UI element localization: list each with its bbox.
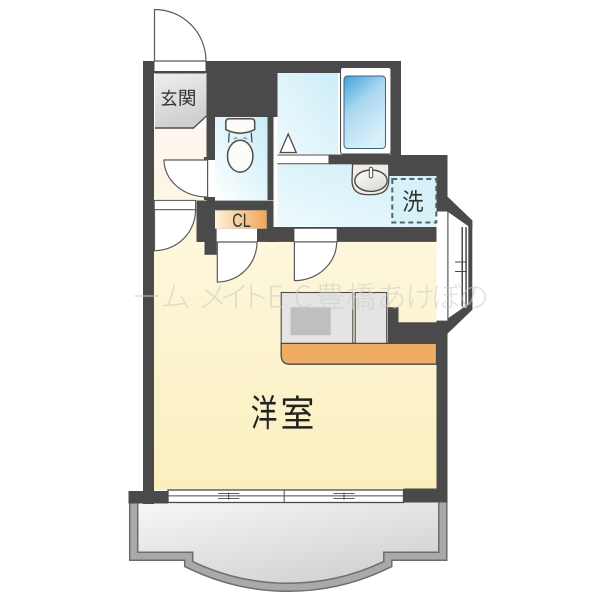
svg-text:CL: CL — [232, 210, 251, 232]
